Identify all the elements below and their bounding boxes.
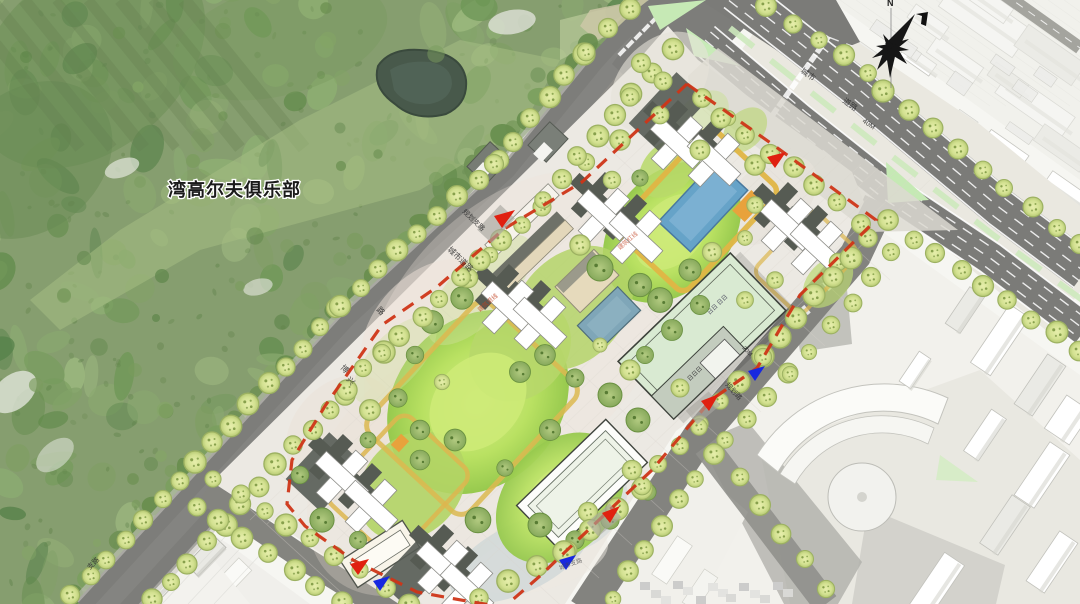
svg-text:N: N: [887, 0, 894, 8]
svg-text:湾高尔夫俱乐部: 湾高尔夫俱乐部: [168, 179, 301, 200]
